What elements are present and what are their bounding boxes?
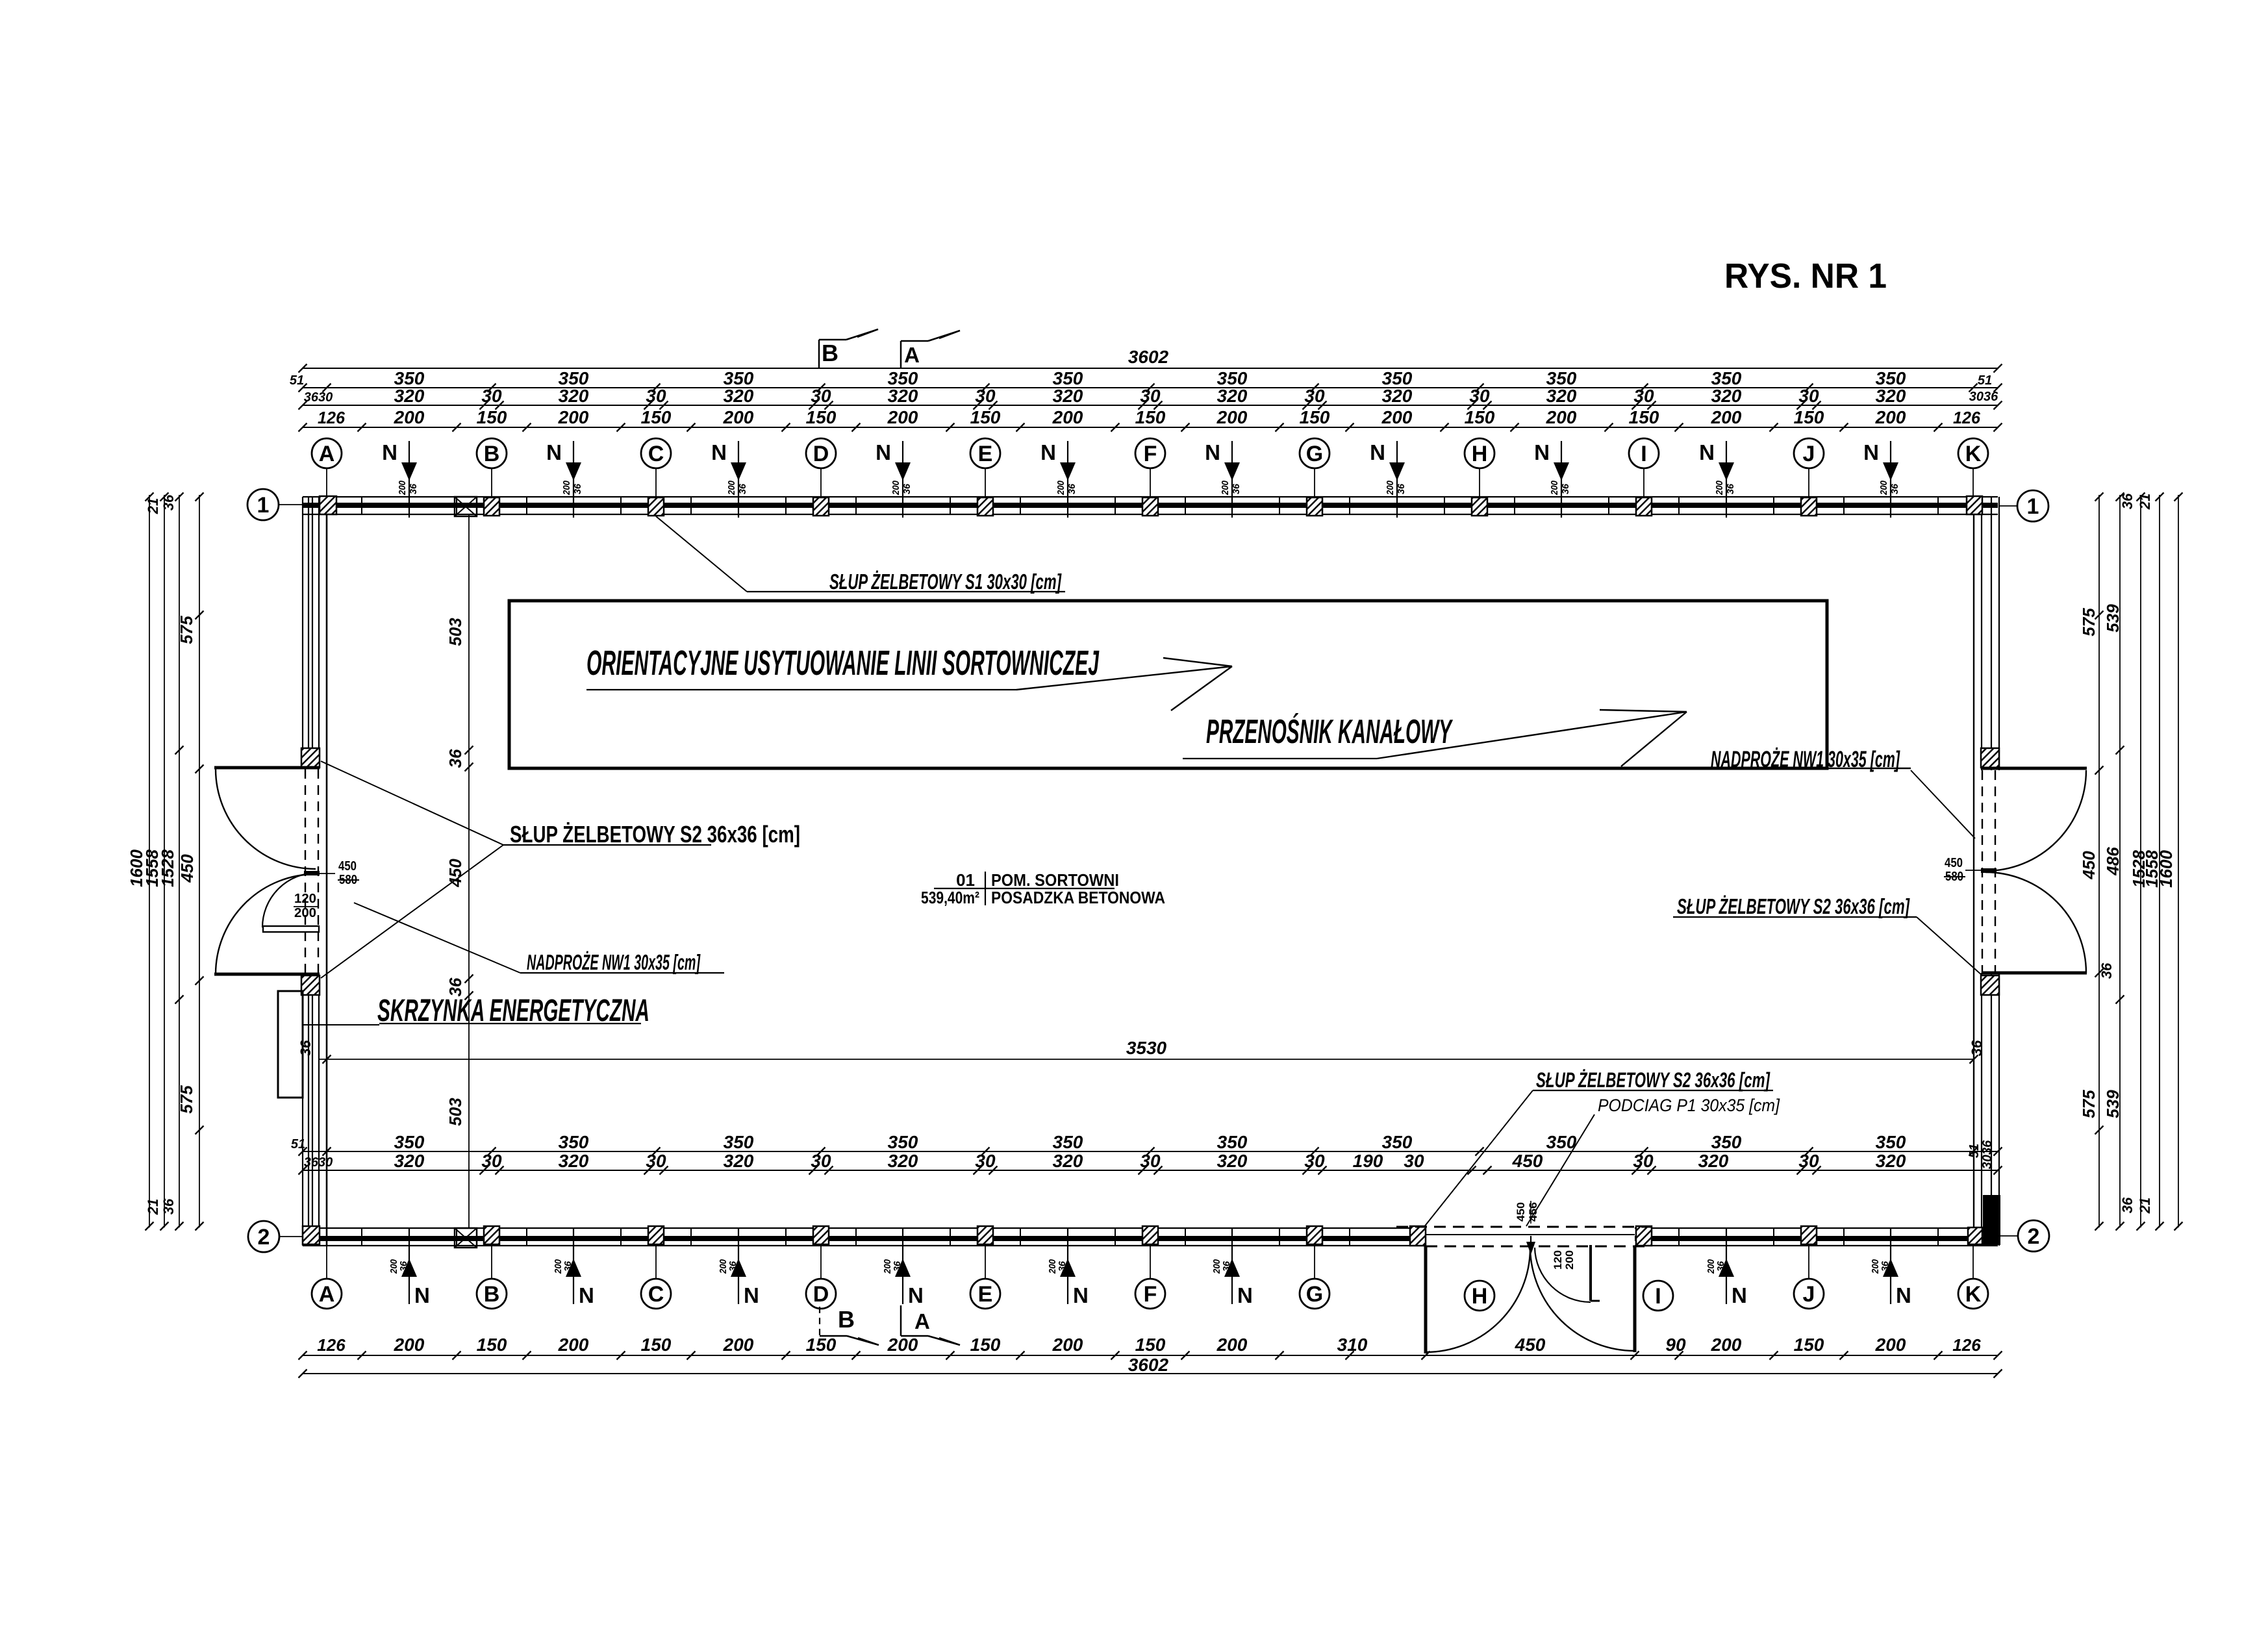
svg-text:320: 320: [1053, 386, 1083, 406]
svg-text:320: 320: [1546, 386, 1577, 406]
svg-text:3530: 3530: [1126, 1038, 1167, 1058]
svg-text:PRZENOŚNIK KANAŁOWY: PRZENOŚNIK KANAŁOWY: [1206, 713, 1453, 751]
svg-text:B: B: [484, 1282, 500, 1307]
svg-text:D: D: [813, 442, 829, 466]
svg-text:36: 36: [1231, 483, 1242, 494]
svg-text:126: 126: [1952, 1335, 1981, 1355]
svg-text:320: 320: [1382, 386, 1413, 406]
svg-text:150: 150: [1135, 407, 1166, 427]
svg-text:320: 320: [1876, 386, 1906, 406]
svg-text:320: 320: [1876, 1151, 1906, 1171]
svg-text:200: 200: [1546, 407, 1577, 427]
svg-text:150: 150: [1465, 407, 1495, 427]
svg-text:30: 30: [646, 1151, 666, 1171]
svg-text:150: 150: [1135, 1335, 1166, 1355]
svg-text:126: 126: [318, 408, 346, 427]
svg-text:320: 320: [559, 1151, 589, 1171]
svg-text:150: 150: [477, 407, 507, 427]
svg-text:200: 200: [561, 480, 572, 495]
svg-text:539: 539: [2103, 604, 2123, 633]
svg-text:320: 320: [394, 1151, 425, 1171]
svg-text:320: 320: [559, 386, 589, 406]
svg-text:539: 539: [2103, 1090, 2123, 1118]
svg-text:120: 120: [294, 892, 316, 906]
svg-text:150: 150: [806, 407, 837, 427]
svg-text:N: N: [744, 1283, 759, 1307]
svg-text:36: 36: [901, 483, 913, 494]
svg-text:21: 21: [2137, 494, 2153, 510]
svg-text:450: 450: [446, 859, 465, 888]
svg-text:350: 350: [1382, 1132, 1413, 1152]
svg-text:126: 126: [1953, 408, 1981, 427]
svg-text:200: 200: [723, 407, 754, 427]
svg-text:200: 200: [1878, 480, 1889, 495]
svg-text:200: 200: [1714, 480, 1725, 495]
svg-text:200: 200: [394, 1335, 425, 1355]
svg-text:30: 30: [1304, 386, 1325, 406]
svg-text:A: A: [904, 343, 920, 367]
svg-text:POM. SORTOWNI: POM. SORTOWNI: [991, 870, 1119, 890]
svg-text:N: N: [382, 440, 397, 464]
svg-text:N: N: [1732, 1283, 1747, 1307]
svg-text:150: 150: [970, 407, 1001, 427]
svg-text:350: 350: [888, 1132, 918, 1152]
svg-text:200: 200: [394, 407, 425, 427]
svg-text:SŁUP ŻELBETOWY S2 36x36 [cm]: SŁUP ŻELBETOWY S2 36x36 [cm]: [1677, 894, 1910, 918]
svg-text:200: 200: [1385, 480, 1396, 495]
svg-text:J: J: [1803, 442, 1815, 466]
svg-text:150: 150: [1629, 407, 1659, 427]
svg-text:503: 503: [446, 618, 465, 646]
svg-text:575: 575: [177, 616, 196, 644]
svg-text:36: 36: [1889, 483, 1900, 494]
svg-text:I: I: [1655, 1284, 1661, 1309]
svg-text:190: 190: [1353, 1151, 1383, 1171]
svg-text:B: B: [484, 442, 500, 466]
svg-text:350: 350: [1217, 1132, 1248, 1152]
svg-text:30: 30: [1404, 1151, 1424, 1171]
svg-text:N: N: [1370, 440, 1385, 464]
svg-text:456: 456: [1527, 1202, 1539, 1222]
svg-text:H: H: [1472, 1284, 1488, 1309]
svg-text:36: 36: [572, 483, 583, 494]
svg-text:200: 200: [1052, 407, 1083, 427]
svg-text:E: E: [978, 442, 993, 466]
svg-text:36: 36: [562, 1261, 573, 1272]
svg-text:NADPROŻE NW1 30x35 [cm]: NADPROŻE NW1 30x35 [cm]: [527, 950, 701, 974]
svg-text:30: 30: [1633, 1151, 1654, 1171]
svg-text:N: N: [1896, 1283, 1911, 1307]
svg-text:126: 126: [317, 1335, 346, 1355]
svg-text:2: 2: [258, 1225, 270, 1250]
svg-text:E: E: [978, 1282, 993, 1307]
svg-text:200: 200: [1216, 407, 1248, 427]
svg-text:30: 30: [811, 1151, 831, 1171]
svg-text:B: B: [822, 340, 838, 366]
svg-text:36: 36: [2119, 1197, 2136, 1213]
svg-text:PODCIAG P1 30x35 [cm]: PODCIAG P1 30x35 [cm]: [1598, 1096, 1780, 1115]
svg-text:450: 450: [1515, 1335, 1546, 1355]
svg-text:21: 21: [145, 498, 161, 514]
svg-text:F: F: [1144, 442, 1157, 466]
svg-text:200: 200: [294, 906, 316, 920]
svg-text:N: N: [908, 1283, 924, 1307]
svg-text:200: 200: [558, 407, 589, 427]
svg-text:200: 200: [1563, 1250, 1576, 1270]
svg-text:36: 36: [446, 977, 465, 996]
svg-text:36: 36: [1396, 483, 1407, 494]
svg-text:150: 150: [1794, 407, 1824, 427]
svg-text:350: 350: [559, 1132, 589, 1152]
svg-text:ORIENTACYJNE USYTUOWANIE LINII: ORIENTACYJNE USYTUOWANIE LINII SORTOWNIC…: [586, 644, 1100, 683]
svg-text:200: 200: [1875, 1335, 1906, 1355]
svg-text:N: N: [711, 440, 727, 464]
svg-text:320: 320: [888, 386, 918, 406]
svg-text:200: 200: [558, 1335, 589, 1355]
svg-text:200: 200: [397, 480, 408, 495]
svg-text:B: B: [838, 1306, 855, 1333]
svg-text:200: 200: [1220, 480, 1231, 495]
svg-text:200: 200: [1549, 480, 1560, 495]
svg-text:320: 320: [724, 386, 754, 406]
svg-text:200: 200: [1216, 1335, 1248, 1355]
svg-text:200: 200: [1875, 407, 1906, 427]
svg-text:36: 36: [398, 1261, 409, 1272]
svg-text:30: 30: [1304, 1151, 1325, 1171]
svg-text:3036: 3036: [1980, 1140, 1995, 1169]
svg-text:450: 450: [1945, 856, 1963, 870]
svg-text:320: 320: [888, 1151, 918, 1171]
svg-text:21: 21: [145, 1199, 161, 1215]
svg-text:H: H: [1472, 442, 1488, 466]
svg-text:3630: 3630: [304, 390, 333, 405]
svg-text:30: 30: [646, 386, 666, 406]
svg-text:2: 2: [2028, 1224, 2040, 1249]
svg-text:3602: 3602: [1128, 1355, 1169, 1375]
svg-text:150: 150: [477, 1335, 507, 1355]
svg-text:SŁUP ŻELBETOWY S2 36x36 [cm]: SŁUP ŻELBETOWY S2 36x36 [cm]: [510, 821, 800, 848]
svg-text:200: 200: [890, 480, 901, 495]
svg-text:SŁUP ŻELBETOWY S2 36x36 [cm]: SŁUP ŻELBETOWY S2 36x36 [cm]: [1536, 1068, 1770, 1092]
svg-text:350: 350: [724, 1132, 754, 1152]
svg-text:N: N: [1699, 440, 1715, 464]
svg-text:320: 320: [394, 386, 425, 406]
svg-text:1600: 1600: [2156, 850, 2176, 888]
svg-text:1: 1: [257, 493, 270, 518]
svg-text:36: 36: [160, 1198, 177, 1214]
svg-text:200: 200: [887, 1335, 918, 1355]
svg-text:3602: 3602: [1128, 347, 1169, 367]
svg-text:539,40m²: 539,40m²: [921, 888, 979, 907]
svg-text:51: 51: [291, 1137, 305, 1151]
svg-text:450: 450: [2079, 851, 2098, 880]
svg-text:450: 450: [338, 859, 357, 874]
svg-text:200: 200: [723, 1335, 754, 1355]
svg-text:36: 36: [1560, 483, 1571, 494]
svg-text:RYS. NR 1: RYS. NR 1: [1724, 257, 1887, 295]
svg-text:36: 36: [737, 483, 748, 494]
svg-text:150: 150: [806, 1335, 837, 1355]
svg-text:200: 200: [1711, 1335, 1742, 1355]
svg-text:36: 36: [160, 494, 177, 510]
svg-text:320: 320: [1217, 386, 1248, 406]
svg-text:K: K: [1965, 442, 1982, 466]
svg-text:200: 200: [726, 480, 737, 495]
svg-text:C: C: [648, 442, 664, 466]
svg-text:150: 150: [1300, 407, 1330, 427]
svg-text:K: K: [1965, 1282, 1982, 1307]
svg-text:N: N: [414, 1283, 430, 1307]
svg-text:30: 30: [1798, 1151, 1819, 1171]
svg-text:36: 36: [727, 1261, 738, 1272]
svg-text:36: 36: [1725, 483, 1736, 494]
svg-text:150: 150: [970, 1335, 1001, 1355]
svg-text:N: N: [1534, 440, 1550, 464]
svg-text:486: 486: [2103, 847, 2123, 876]
svg-text:A: A: [319, 1282, 335, 1307]
svg-text:I: I: [1641, 442, 1646, 466]
svg-text:36: 36: [1066, 483, 1077, 494]
svg-text:350: 350: [1053, 1132, 1083, 1152]
svg-text:350: 350: [1546, 1132, 1577, 1152]
svg-text:200: 200: [1055, 480, 1066, 495]
svg-text:36: 36: [408, 483, 419, 494]
svg-text:150: 150: [641, 407, 672, 427]
svg-text:200: 200: [1381, 407, 1413, 427]
svg-text:320: 320: [1217, 1151, 1248, 1171]
svg-text:575: 575: [2079, 608, 2098, 636]
svg-text:G: G: [1306, 442, 1323, 466]
svg-text:450: 450: [177, 854, 197, 883]
svg-text:1528: 1528: [158, 849, 177, 887]
svg-text:200: 200: [1711, 407, 1742, 427]
svg-text:F: F: [1144, 1282, 1157, 1307]
svg-text:N: N: [876, 440, 891, 464]
svg-text:J: J: [1803, 1282, 1815, 1307]
svg-text:POSADZKA BETONOWA: POSADZKA BETONOWA: [991, 888, 1165, 907]
svg-text:N: N: [546, 440, 562, 464]
svg-text:30: 30: [1798, 386, 1819, 406]
svg-text:320: 320: [1711, 386, 1742, 406]
svg-text:3630: 3630: [304, 1155, 333, 1170]
svg-text:150: 150: [641, 1335, 672, 1355]
svg-text:30: 30: [481, 386, 502, 406]
svg-text:3036: 3036: [1969, 390, 1998, 404]
svg-text:450: 450: [1512, 1151, 1543, 1171]
svg-text:36: 36: [297, 1040, 314, 1056]
svg-text:36: 36: [446, 749, 465, 768]
svg-text:01: 01: [956, 870, 975, 890]
svg-text:30: 30: [481, 1151, 502, 1171]
svg-text:30: 30: [975, 1151, 996, 1171]
svg-text:A: A: [914, 1309, 930, 1333]
svg-text:36: 36: [1221, 1261, 1232, 1272]
svg-text:350: 350: [1711, 1132, 1742, 1152]
svg-text:N: N: [1863, 440, 1879, 464]
svg-text:30: 30: [975, 386, 996, 406]
svg-text:51: 51: [1967, 1144, 1982, 1158]
svg-text:D: D: [813, 1282, 829, 1307]
svg-text:575: 575: [177, 1085, 196, 1114]
svg-text:51: 51: [290, 373, 304, 388]
svg-text:320: 320: [724, 1151, 754, 1171]
svg-text:450: 450: [1515, 1202, 1527, 1222]
svg-text:C: C: [648, 1282, 664, 1307]
svg-text:36: 36: [1715, 1261, 1726, 1272]
svg-text:503: 503: [446, 1098, 465, 1126]
svg-text:36: 36: [1969, 1040, 1985, 1056]
svg-text:21: 21: [2137, 1198, 2153, 1214]
svg-text:30: 30: [1140, 386, 1161, 406]
svg-text:30: 30: [1469, 386, 1490, 406]
svg-text:N: N: [579, 1283, 594, 1307]
svg-text:N: N: [1237, 1283, 1253, 1307]
svg-text:36: 36: [892, 1261, 903, 1272]
svg-text:N: N: [1073, 1283, 1089, 1307]
svg-text:350: 350: [394, 1132, 425, 1152]
svg-text:51: 51: [1978, 373, 1992, 388]
svg-text:N: N: [1040, 440, 1056, 464]
svg-text:200: 200: [1052, 1335, 1083, 1355]
svg-text:SŁUP ŻELBETOWY S1 30x30 [cm]: SŁUP ŻELBETOWY S1 30x30 [cm]: [829, 570, 1062, 594]
svg-text:36: 36: [1057, 1261, 1068, 1272]
svg-text:36: 36: [1880, 1261, 1891, 1272]
svg-text:30: 30: [1140, 1151, 1161, 1171]
svg-text:320: 320: [1053, 1151, 1083, 1171]
svg-text:30: 30: [1633, 386, 1654, 406]
svg-text:G: G: [1306, 1282, 1323, 1307]
svg-text:120: 120: [1552, 1250, 1564, 1270]
svg-text:150: 150: [1794, 1335, 1824, 1355]
svg-text:320: 320: [1698, 1151, 1729, 1171]
svg-text:N: N: [1205, 440, 1220, 464]
svg-text:1: 1: [2027, 494, 2039, 519]
svg-text:200: 200: [887, 407, 918, 427]
svg-text:30: 30: [811, 386, 831, 406]
svg-text:575: 575: [2079, 1090, 2098, 1118]
svg-text:350: 350: [1876, 1132, 1906, 1152]
svg-text:A: A: [319, 442, 335, 466]
